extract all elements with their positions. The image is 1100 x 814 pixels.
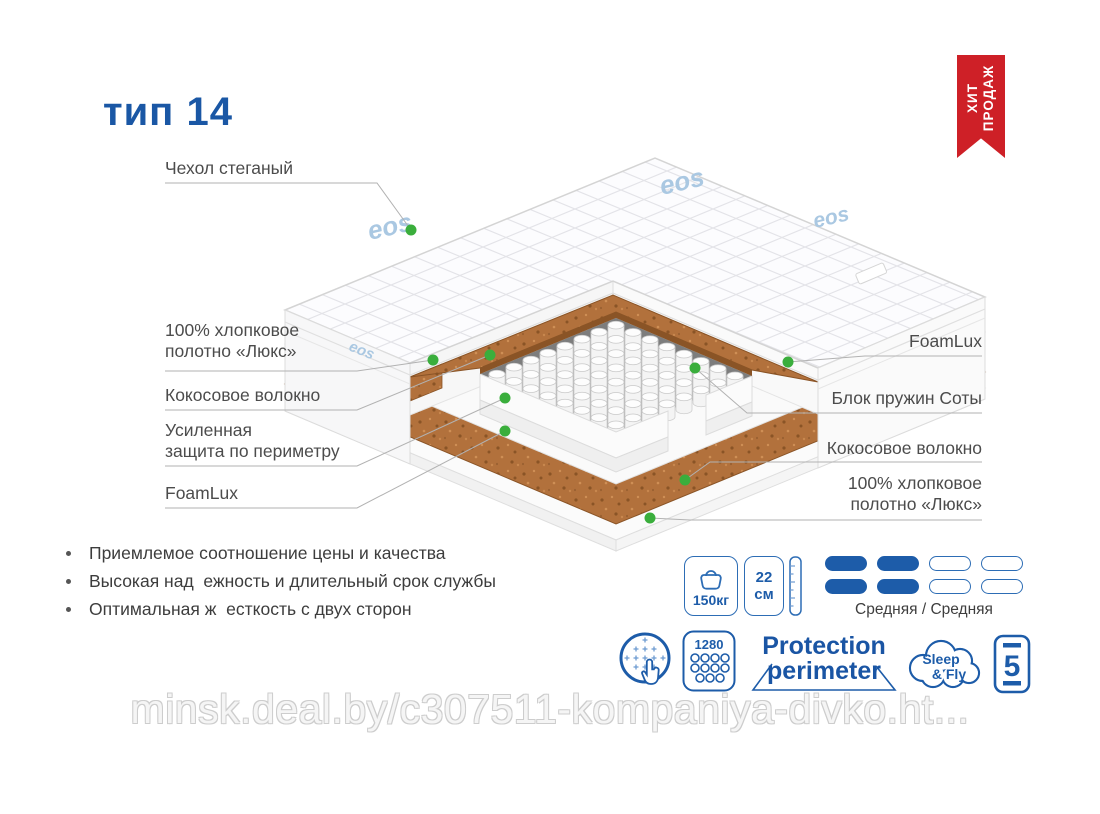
max-load-icon: 150кг (684, 556, 738, 616)
bullet-item: Приемлемое соотношение цены и качества (58, 543, 496, 571)
feature-bullet-list: Приемлемое соотношение цены и качества В… (58, 543, 496, 627)
firmness-pill (981, 579, 1023, 594)
firmness-label: Средняя / Средняя (815, 601, 1033, 619)
bullet-dot (66, 579, 71, 584)
firmness-pill (929, 579, 971, 594)
bullet-text: Приемлемое соотношение цены и качества (89, 543, 446, 564)
callout-cotton-lux-right: 100% хлопковое полотно «Люкс» (742, 473, 982, 515)
firmness-pill (929, 556, 971, 571)
svg-text:eos: eos (811, 202, 851, 233)
callout-foamlux-right: FoamLux (742, 331, 982, 352)
bullet-item: Оптимальная ж есткость с двух сторон (58, 599, 496, 627)
springs-count-value: 1280 (695, 637, 724, 652)
callout-cotton-lux-left: 100% хлопковое полотно «Люкс» (165, 320, 385, 362)
brand-line2: & Fly (932, 666, 966, 682)
brand-line1: Sleep (922, 651, 959, 667)
height-icon: 22 см (744, 556, 784, 616)
bullet-text: Высокая над ежность и длительный срок сл… (89, 571, 496, 592)
callout-spring-block: Блок пружин Соты (722, 388, 982, 409)
firmness-pill (981, 556, 1023, 571)
kettlebell-icon (696, 564, 726, 592)
firmness-pill (877, 579, 919, 594)
press-hand-icon (642, 660, 659, 685)
callout-coir-left: Кокосовое волокно (165, 385, 385, 406)
protection-line2: perimeter (767, 657, 881, 685)
bullet-text: Оптимальная ж есткость с двух сторон (89, 599, 412, 620)
springs-count-icon: 1280 (682, 630, 736, 692)
height-value: 22 (756, 569, 773, 586)
max-load-value: 150кг (693, 592, 729, 608)
callout-quilted-cover: Чехол стеганый (165, 158, 385, 179)
height-unit: см (754, 586, 773, 603)
warranty-5-years-icon: 5 (993, 634, 1031, 694)
callout-foamlux-left: FoamLux (165, 483, 385, 504)
protection-line1: Protection (762, 632, 886, 660)
site-watermark: minsk.deal.by/c307511-kompaniya-divko.ht… (0, 686, 1100, 733)
bullet-item: Высокая над ежность и длительный срок сл… (58, 571, 496, 599)
sleep-and-fly-logo: Sleep & Fly (903, 636, 985, 692)
callout-perimeter-protection: Усиленная защита по периметру (165, 420, 395, 462)
firmness-pill (825, 556, 867, 571)
firmness-pill (877, 556, 919, 571)
independent-springs-press-icon (618, 630, 676, 692)
callout-coir-right: Кокосовое волокно (722, 438, 982, 459)
bullet-dot (66, 551, 71, 556)
ruler-icon (789, 556, 802, 616)
firmness-pill (825, 579, 867, 594)
product-infographic: тип 14 ХИТ ПРОДАЖ (0, 0, 1100, 814)
warranty-value: 5 (1004, 650, 1021, 683)
protection-perimeter-icon: Protection perimeter (748, 632, 900, 694)
bullet-dot (66, 607, 71, 612)
